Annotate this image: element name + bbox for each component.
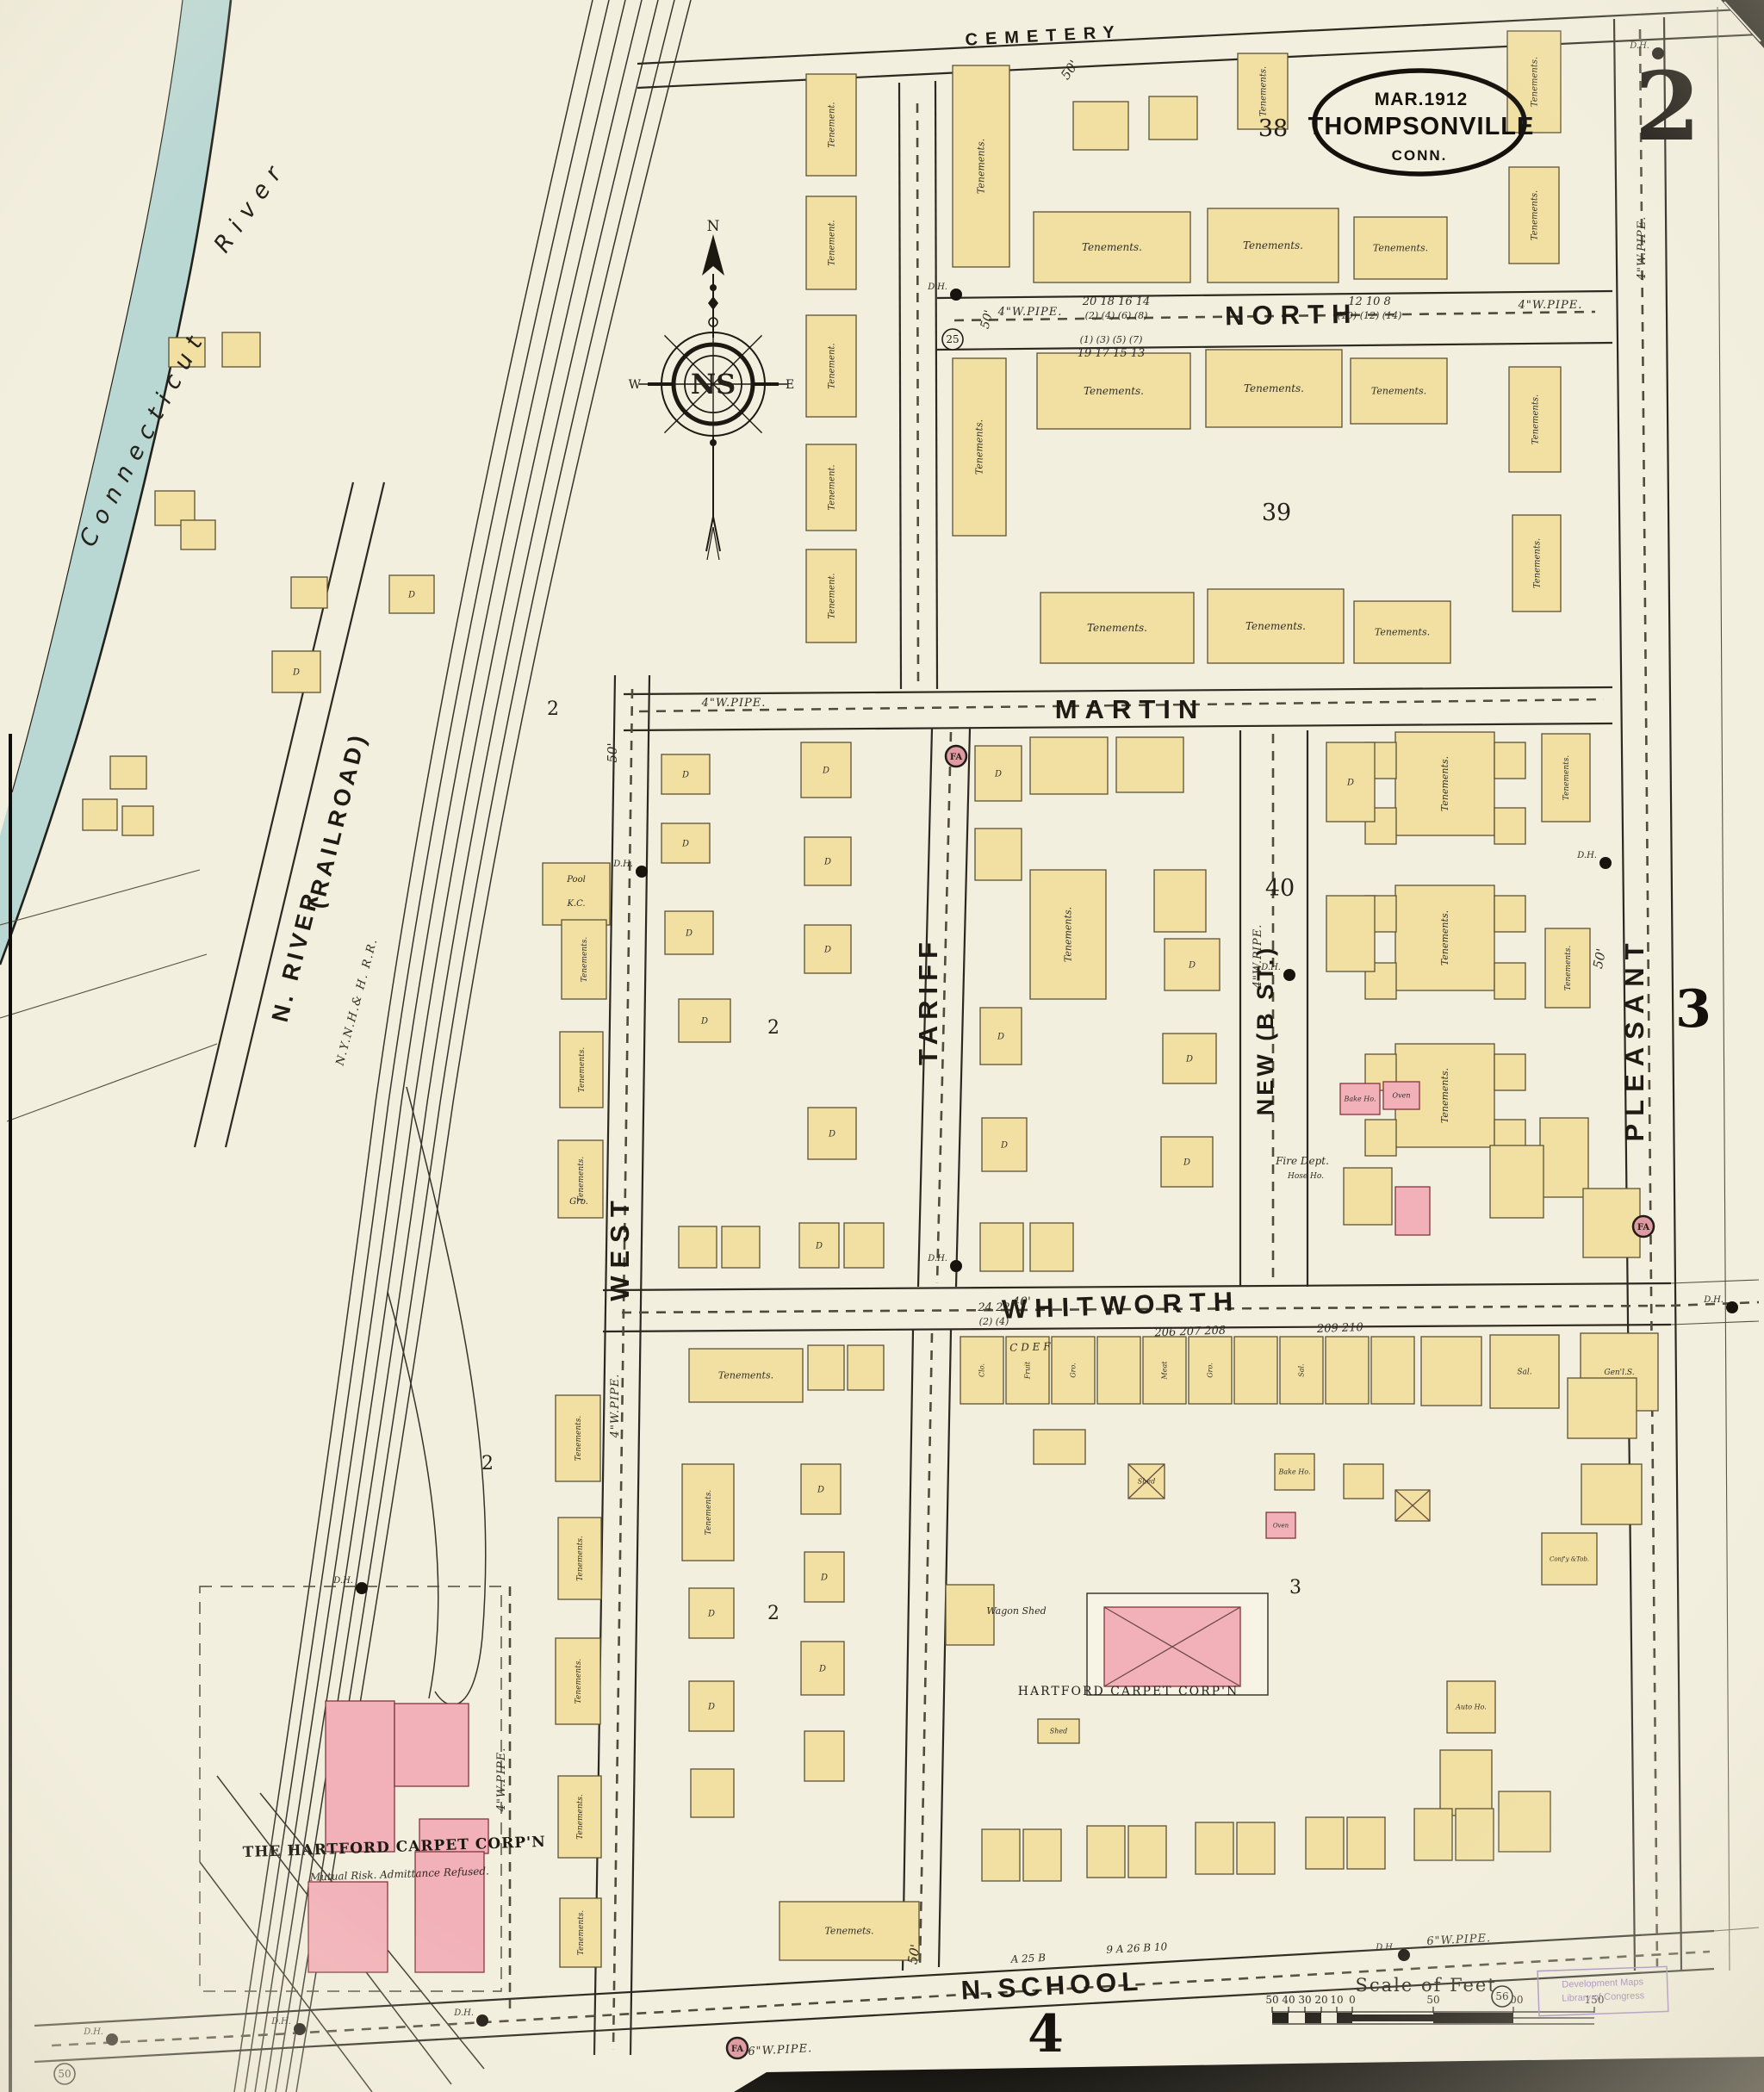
- building-label: Tenement.: [827, 220, 836, 265]
- building-label: D: [1183, 1158, 1190, 1167]
- building: [1494, 1054, 1525, 1090]
- building-label: Tenement.: [827, 102, 836, 147]
- adjacent-sheet-right: 3: [1675, 979, 1711, 1040]
- building: [722, 1226, 760, 1268]
- building-label: D: [1188, 960, 1196, 970]
- map-city: THOMPSONVILLE: [1308, 113, 1535, 140]
- map-label: PLEASANT: [1619, 935, 1649, 1141]
- building-label: D: [820, 1573, 828, 1582]
- building-label: Tenements.: [1530, 190, 1539, 240]
- building: [1440, 1750, 1492, 1816]
- building: [1073, 102, 1128, 150]
- building-label: Tenements.: [1439, 1068, 1450, 1123]
- building: [1540, 1118, 1588, 1197]
- hydrant-label: D.H.: [453, 2008, 474, 2018]
- hydrant-label: D.H.: [1576, 851, 1597, 860]
- building: [844, 1223, 884, 1268]
- building-label: Tenements.: [1084, 385, 1144, 397]
- building-label: Tenements.: [581, 937, 589, 983]
- map-label: 4"W.PIPE.: [1636, 216, 1649, 282]
- scale-tick-label: 10: [1330, 1994, 1343, 2006]
- double-hydrant-icon: [106, 2033, 118, 2045]
- building-label: Tenements.: [974, 419, 985, 475]
- building: [1023, 1829, 1061, 1881]
- building: [326, 1701, 394, 1852]
- building-label: D: [407, 590, 415, 599]
- building: [808, 1345, 844, 1390]
- building-label: Tenements.: [1531, 394, 1540, 444]
- compass-east-label: E: [786, 378, 794, 392]
- scale-tick-label: 30: [1298, 1994, 1311, 2006]
- hydrant-label: D.H.: [927, 1254, 947, 1263]
- building: [1154, 870, 1206, 932]
- building: [394, 1704, 469, 1786]
- building: [1097, 1337, 1140, 1404]
- building-label: Tenement.: [827, 343, 836, 388]
- building-label: Tenements.: [576, 1536, 585, 1581]
- map-label: 3: [1289, 1577, 1301, 1598]
- map-label: (1) (3) (5) (7): [1080, 334, 1143, 345]
- hydrant-label: D.H.: [83, 2027, 103, 2037]
- map-label: 20 18 16 14: [1082, 295, 1151, 308]
- building: [1344, 1168, 1392, 1225]
- building-label: Bake Ho.: [1278, 1468, 1311, 1476]
- building-label: Tenements.: [1244, 382, 1304, 394]
- building: [804, 1731, 844, 1781]
- building-label: Tenements.: [1562, 755, 1571, 801]
- building: [1494, 896, 1525, 932]
- building: [1030, 1223, 1073, 1271]
- building-label: D: [292, 667, 300, 677]
- map-label: (2) (4) (6) (8): [1085, 310, 1148, 321]
- building: [1414, 1809, 1452, 1860]
- building-label: Tenement.: [827, 573, 836, 618]
- scale-tick-label: 50: [1265, 1994, 1278, 2006]
- double-hydrant-icon: [356, 1582, 368, 1594]
- building-label: D: [823, 857, 831, 866]
- map-label: K.C.: [566, 899, 585, 909]
- map-svg: Tenements.Tenements.Tenements.Tenements.…: [0, 0, 1764, 2092]
- building-label: Tenements.: [576, 1794, 585, 1840]
- building-label: D: [685, 928, 693, 938]
- map-label: 4"W.PIPE.: [609, 1374, 622, 1439]
- map-label: 40': [1011, 1295, 1031, 1309]
- map-label: Hose Ho.: [1287, 1172, 1324, 1181]
- map-label: 2: [767, 1603, 780, 1624]
- building-label: D: [681, 839, 689, 848]
- building: [1583, 1189, 1640, 1257]
- building-label: Tenements.: [578, 1047, 587, 1093]
- map-label: Pool: [566, 875, 586, 885]
- building-label: Sal.: [1517, 1369, 1531, 1377]
- building-label: Tenements.: [575, 1416, 583, 1462]
- building-label: Tenements.: [705, 1490, 713, 1536]
- building-label: Tenements.: [1087, 622, 1147, 634]
- building: [691, 1769, 734, 1817]
- building: [308, 1882, 388, 1972]
- building: [110, 756, 146, 789]
- reference-circle-number: 50: [58, 2068, 71, 2080]
- building: [1326, 1337, 1369, 1404]
- fire-alarm-label: FA: [731, 2045, 744, 2054]
- map-label: MARTIN: [1055, 694, 1206, 724]
- building-label: D: [1185, 1054, 1193, 1064]
- map-label: WEST: [605, 1193, 635, 1301]
- map-label: Fire Dept.: [1275, 1155, 1329, 1167]
- building: [1568, 1378, 1637, 1438]
- map-state: CONN.: [1392, 147, 1448, 164]
- double-hydrant-icon: [950, 289, 962, 301]
- double-hydrant-icon: [636, 866, 648, 878]
- building-label: D: [828, 1129, 835, 1139]
- building-label: Tenements.: [575, 1659, 583, 1704]
- double-hydrant-icon: [1283, 969, 1295, 981]
- building: [1365, 1120, 1396, 1156]
- building-label: Shed: [1138, 1478, 1156, 1486]
- building: [1490, 1145, 1543, 1218]
- scale-tick-label: 20: [1314, 1994, 1327, 2006]
- map-label: 2: [767, 1017, 780, 1039]
- building: [679, 1226, 717, 1268]
- map-label: TARIFF: [913, 936, 943, 1065]
- building: [1087, 1826, 1125, 1878]
- building-label: Conf'y &Tob.: [1550, 1555, 1589, 1562]
- building: [83, 799, 117, 830]
- building-label: Fruit: [1024, 1361, 1032, 1380]
- building: [1421, 1337, 1481, 1406]
- map-label: (2) (4): [979, 1316, 1009, 1327]
- building-label: D: [823, 945, 831, 954]
- building-label: D: [994, 769, 1002, 779]
- building-label: Oven: [1393, 1092, 1411, 1100]
- building: [543, 863, 610, 925]
- building-label: D: [817, 1485, 824, 1494]
- map-label: 24 22: [977, 1301, 1009, 1314]
- building: [181, 520, 215, 549]
- double-hydrant-icon: [476, 2014, 488, 2027]
- map-label: 12 10 8: [1348, 295, 1391, 308]
- compass-west-label: W: [629, 378, 642, 392]
- hydrant-label: D.H.: [1629, 41, 1649, 51]
- map-label: 40: [1265, 875, 1295, 902]
- building-label: Tenements.: [577, 1157, 586, 1202]
- map-label: 19 17 15 13: [1078, 347, 1146, 360]
- double-hydrant-icon: [1599, 857, 1612, 869]
- scale-bar-title: Scale of Feet.: [1356, 1975, 1505, 1996]
- hydrant-label: D.H.: [1375, 1943, 1395, 1952]
- map-label: 38: [1258, 115, 1288, 142]
- building: [1116, 737, 1183, 792]
- reference-circle-number: 56: [1495, 1990, 1508, 2002]
- map-label: 209 210: [1316, 1321, 1363, 1336]
- hydrant-label: D.H.: [270, 2017, 291, 2027]
- map-label: A 25 B: [1009, 1952, 1046, 1965]
- building-label: D: [818, 1664, 826, 1673]
- building-label: Tenements.: [1375, 627, 1430, 638]
- building: [222, 332, 260, 367]
- sanborn-map-sheet: Tenements.Tenements.Tenements.Tenements.…: [0, 0, 1764, 2092]
- building: [1494, 963, 1525, 999]
- building-label: Shed: [1050, 1728, 1068, 1735]
- building-label: D: [681, 770, 689, 779]
- building-label: Tenements.: [1063, 907, 1074, 962]
- building-label: Sal.: [1298, 1363, 1306, 1376]
- building-label: D: [1000, 1140, 1008, 1150]
- scale-tick-label: 40: [1282, 1994, 1295, 2006]
- building-label: Tenements.: [1439, 910, 1450, 965]
- building-label: Gen'l.S.: [1604, 1369, 1634, 1377]
- building-label: Tenements.: [1243, 239, 1303, 251]
- map-label: C D E F: [1009, 1340, 1051, 1354]
- building-label: Tenements.: [1530, 57, 1539, 107]
- building-label: Tenement.: [827, 464, 836, 510]
- map-label: Gro.: [569, 1197, 588, 1207]
- map-label: 206 207 208: [1153, 1325, 1226, 1340]
- adjacent-sheet-bottom: 4: [1028, 2004, 1064, 2064]
- map-label: 2: [481, 1453, 494, 1474]
- map-label: HARTFORD CARPET CORP'N: [1018, 1685, 1239, 1698]
- building-label: D: [997, 1032, 1004, 1041]
- fire-alarm-label: FA: [950, 753, 963, 762]
- building-label: Tenements.: [1373, 243, 1428, 254]
- building: [1371, 1337, 1414, 1404]
- building-label: Gro.: [1207, 1363, 1214, 1377]
- map-label: 4"W.PIPE.: [701, 697, 767, 710]
- building-label: D: [822, 766, 829, 775]
- map-label: Wagon Shed: [986, 1605, 1046, 1617]
- building-label: Tenements.: [1439, 756, 1450, 811]
- map-label: 50': [605, 742, 620, 762]
- building: [1456, 1809, 1494, 1860]
- building-label: Tenements.: [1532, 538, 1542, 588]
- map-label: 39: [1262, 500, 1291, 526]
- hydrant-label: D.H.: [1260, 963, 1281, 972]
- building-label: D: [700, 1016, 708, 1026]
- building-label: D: [815, 1241, 823, 1251]
- building: [982, 1829, 1020, 1881]
- map-label: 4"W.PIPE.: [1518, 299, 1583, 312]
- building-label: Clo.: [978, 1363, 986, 1377]
- scale-tick-label: 50: [1426, 1994, 1439, 2006]
- building-label: Tenements.: [1371, 386, 1426, 397]
- building: [1499, 1791, 1550, 1852]
- hydrant-label: D.H.: [1703, 1295, 1724, 1305]
- map-date: MAR.1912: [1375, 90, 1468, 109]
- compass-north-label: N: [707, 218, 720, 235]
- building: [1234, 1337, 1277, 1404]
- building-label: Tenements.: [976, 139, 987, 194]
- building: [1326, 896, 1375, 972]
- building: [1581, 1464, 1642, 1524]
- building-label: Auto Ho.: [1455, 1704, 1487, 1711]
- building: [1128, 1826, 1166, 1878]
- map-label: 2: [547, 698, 559, 720]
- scale-tick-label: 0: [1349, 1994, 1356, 2006]
- building-label: Tenements.: [577, 1910, 586, 1956]
- double-hydrant-icon: [294, 2023, 306, 2035]
- building: [1034, 1430, 1085, 1464]
- map-label: 4"W.PIPE.: [1252, 924, 1264, 990]
- sheet-number: 2: [1635, 51, 1701, 162]
- building-label: Tenements.: [1245, 620, 1306, 632]
- building-label: Tenements.: [718, 1370, 773, 1381]
- building-label: D: [707, 1702, 715, 1711]
- building: [1149, 96, 1197, 140]
- compass-monogram: NS: [691, 368, 736, 400]
- map-label: (10) (12) (14): [1338, 310, 1402, 321]
- building: [1344, 1464, 1383, 1499]
- building: [1306, 1817, 1344, 1869]
- building-label: D: [707, 1609, 715, 1618]
- building-label: Tenements.: [1258, 66, 1268, 116]
- map-label: 4"W.PIPE.: [997, 306, 1063, 319]
- building: [848, 1345, 884, 1390]
- fire-alarm-label: FA: [1637, 1223, 1650, 1232]
- double-hydrant-icon: [950, 1260, 962, 1272]
- building: [1196, 1822, 1233, 1874]
- building: [1395, 1187, 1430, 1235]
- double-hydrant-icon: [1398, 1949, 1410, 1961]
- building: [980, 1223, 1023, 1271]
- building-label: Tenements.: [1564, 946, 1573, 991]
- reference-circle-number: 25: [946, 333, 959, 345]
- building: [1494, 742, 1525, 779]
- building: [122, 806, 153, 835]
- hydrant-label: D.H.: [927, 282, 947, 292]
- building-label: Bake Ho.: [1344, 1096, 1376, 1103]
- building: [291, 577, 327, 608]
- building: [1494, 808, 1525, 844]
- building-label: Meat: [1161, 1361, 1169, 1381]
- map-label: 4"W.PIPE.: [495, 1747, 508, 1813]
- building: [975, 829, 1022, 880]
- building-label: Oven: [1273, 1522, 1289, 1529]
- building: [1347, 1817, 1385, 1869]
- hydrant-label: D.H.: [332, 1576, 353, 1586]
- building-label: Tenements.: [1082, 241, 1142, 253]
- building: [1030, 737, 1108, 794]
- hydrant-label: D.H.: [612, 860, 633, 869]
- building-label: Tenemets.: [824, 1926, 873, 1937]
- double-hydrant-icon: [1726, 1301, 1738, 1313]
- paper-background: [0, 0, 1764, 2092]
- building: [1237, 1822, 1275, 1874]
- building-label: Gro.: [1070, 1363, 1078, 1377]
- building-label: D: [1346, 778, 1354, 787]
